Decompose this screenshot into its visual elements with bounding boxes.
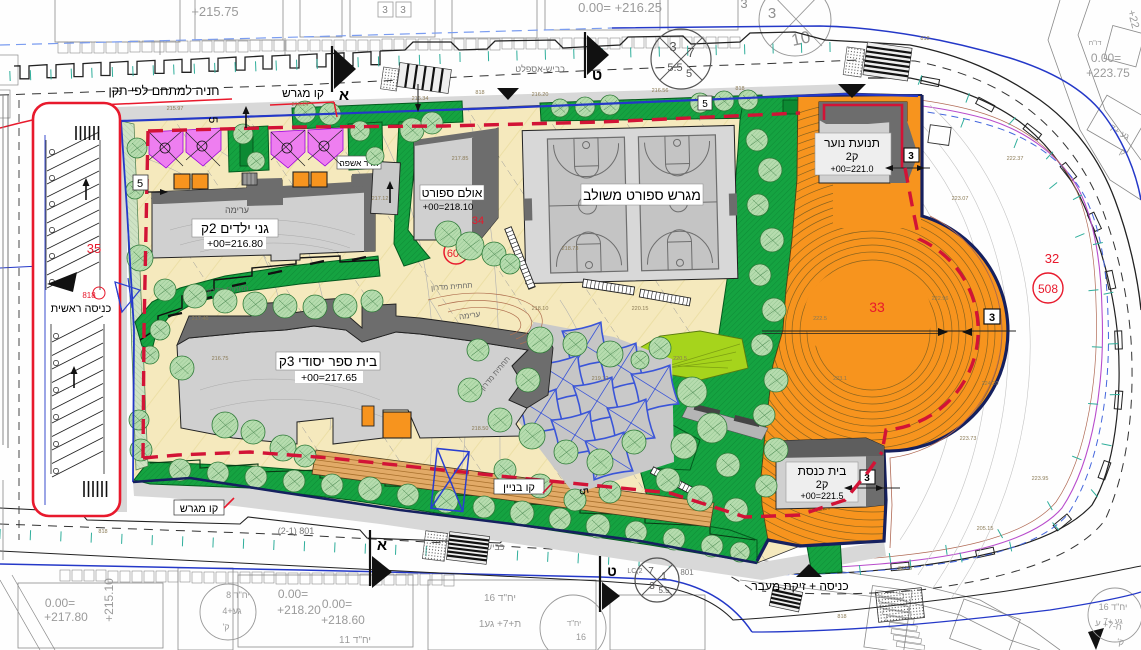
svg-text:1: 1 [661, 571, 667, 582]
svg-text:1ת+7+ גע: 1ת+7+ גע [479, 619, 521, 630]
svg-text:0.00=: 0.00= [1091, 51, 1121, 65]
svg-text:34: 34 [472, 215, 484, 227]
svg-text:2ק: 2ק [816, 479, 829, 491]
svg-text:217.85: 217.85 [452, 156, 469, 162]
svg-text:7: 7 [648, 566, 654, 577]
svg-text:217.40: 217.40 [192, 316, 209, 322]
svg-text:32: 32 [1045, 251, 1059, 266]
svg-text:818: 818 [920, 36, 929, 42]
svg-text:5: 5 [702, 99, 708, 110]
svg-text:7: 7 [687, 45, 694, 60]
svg-text:0.00=: 0.00= [278, 587, 308, 601]
svg-text:ערימה: ערימה [225, 205, 249, 215]
svg-text:יח"ד: יח"ד [567, 619, 581, 628]
svg-text:222.37: 222.37 [1007, 156, 1024, 162]
svg-text:218.73: 218.73 [562, 246, 579, 252]
svg-text:2ק: 2ק [846, 151, 859, 163]
svg-text:222.5: 222.5 [813, 316, 827, 322]
svg-text:+218.60: +218.60 [321, 613, 365, 627]
svg-text:818: 818 [98, 529, 107, 535]
svg-text:+215.10: +215.10 [102, 578, 116, 622]
svg-text:224.20: 224.20 [982, 381, 999, 387]
svg-text:+217.80: +217.80 [44, 610, 88, 624]
svg-text:216.14: 216.14 [292, 102, 309, 108]
svg-text:א: א [377, 537, 387, 554]
svg-text:יח"ד 16: יח"ד 16 [1099, 602, 1128, 612]
svg-text:3: 3 [649, 581, 655, 592]
svg-text:7+ גע: 7+ גע [1103, 617, 1123, 626]
svg-text:818: 818 [82, 291, 96, 300]
svg-text:3: 3 [768, 5, 776, 22]
svg-text:10: 10 [790, 27, 812, 50]
svg-text:3: 3 [740, 0, 747, 11]
svg-text:5: 5 [206, 117, 220, 124]
svg-text:222.3: 222.3 [898, 566, 912, 572]
svg-text:+218.20: +218.20 [277, 603, 321, 617]
svg-text:בית כנסת: בית כנסת [798, 464, 847, 478]
svg-text:+00=216.80: +00=216.80 [207, 238, 263, 250]
svg-text:גני ילדים 2ק: גני ילדים 2ק [201, 221, 269, 236]
svg-text:+00=217.65: +00=217.65 [301, 372, 357, 384]
svg-text:יח"ד 11: יח"ד 11 [339, 635, 371, 646]
svg-text:3: 3 [400, 5, 406, 16]
svg-text:3: 3 [989, 312, 995, 324]
svg-text:כביש-אספלט: כביש-אספלט [515, 64, 565, 74]
svg-text:217.12: 217.12 [372, 196, 389, 202]
svg-text:+00=221.5: +00=221.5 [800, 491, 843, 501]
svg-text:4+גע: 4+גע [222, 606, 241, 616]
svg-text:קו מגרש: קו מגרש [180, 503, 219, 515]
svg-text:3: 3 [382, 5, 388, 16]
svg-text:0.00=: 0.00= [45, 596, 75, 610]
svg-text:5: 5 [686, 68, 692, 80]
svg-text:3: 3 [669, 39, 676, 54]
svg-text:223.1: 223.1 [833, 376, 847, 382]
svg-text:קו מגרש: קו מגרש [282, 86, 324, 100]
svg-text:כניסה + זיקת מעבר: כניסה + זיקת מעבר [751, 579, 848, 593]
svg-text:222.96: 222.96 [932, 296, 949, 302]
svg-text:223.95: 223.95 [1032, 476, 1049, 482]
svg-text:216.20: 216.20 [532, 92, 549, 98]
svg-text:205.15: 205.15 [977, 526, 994, 532]
svg-text:218.10: 218.10 [532, 306, 549, 312]
svg-text:5.5: 5.5 [658, 586, 670, 595]
svg-text:216.34: 216.34 [412, 96, 429, 102]
svg-text:818: 818 [735, 86, 744, 92]
svg-text:218.50: 218.50 [472, 426, 489, 432]
svg-text:+215.75: +215.75 [191, 4, 238, 19]
svg-text:5: 5 [137, 178, 143, 190]
svg-text:כניסה ראשית: כניסה ראשית [51, 303, 112, 315]
svg-text:תנועת נוער: תנועת נוער [824, 136, 880, 150]
svg-text:(2-1) 801: (2-1) 801 [278, 526, 315, 536]
svg-text:0.00= +216.25: 0.00= +216.25 [578, 0, 662, 15]
svg-text:ט: ט [607, 563, 617, 579]
svg-text:א: א [339, 87, 349, 104]
svg-text:'ק: 'ק [222, 622, 229, 632]
svg-text:חניה למתחם לפי תקן: חניה למתחם לפי תקן [109, 84, 220, 98]
svg-text:+223.75: +223.75 [1086, 66, 1130, 80]
svg-text:0.00=: 0.00= [322, 597, 352, 611]
svg-text:508: 508 [1038, 282, 1058, 296]
svg-text:דו"ח: דו"ח [1089, 40, 1102, 47]
svg-text:818: 818 [475, 90, 484, 96]
svg-text:33: 33 [869, 299, 885, 315]
svg-text:818: 818 [837, 614, 846, 620]
svg-text:יח"ד 16: יח"ד 16 [484, 593, 516, 604]
svg-text:בית ספר יסודי 3ק: בית ספר יסודי 3ק [279, 354, 377, 369]
svg-text:קו בניין: קו בניין [503, 482, 535, 494]
svg-text:+00=221.0: +00=221.0 [830, 164, 873, 174]
svg-text:223.73: 223.73 [960, 436, 977, 442]
svg-text:ט: ט [592, 67, 602, 84]
svg-text:3: 3 [908, 151, 914, 162]
svg-text:+00=218.10: +00=218.10 [423, 202, 474, 213]
svg-text:אולם ספורט: אולם ספורט [422, 186, 483, 200]
svg-text:219.12: 219.12 [592, 376, 609, 382]
svg-text:220.5: 220.5 [673, 356, 687, 362]
svg-text:5.5: 5.5 [667, 62, 682, 74]
svg-text:215.97: 215.97 [167, 106, 184, 112]
svg-text:220.15: 220.15 [632, 306, 649, 312]
svg-text:יח"ד 8: יח"ד 8 [226, 590, 250, 600]
svg-text:LC(2: LC(2 [627, 568, 642, 575]
svg-text:מגרש ספורט משולב: מגרש ספורט משולב [583, 187, 701, 203]
svg-text:216.75: 216.75 [212, 356, 229, 362]
svg-text:35: 35 [87, 241, 101, 256]
svg-text:223.07: 223.07 [952, 196, 969, 202]
svg-text:216.56: 216.56 [652, 88, 669, 94]
svg-text:16: 16 [576, 632, 586, 642]
